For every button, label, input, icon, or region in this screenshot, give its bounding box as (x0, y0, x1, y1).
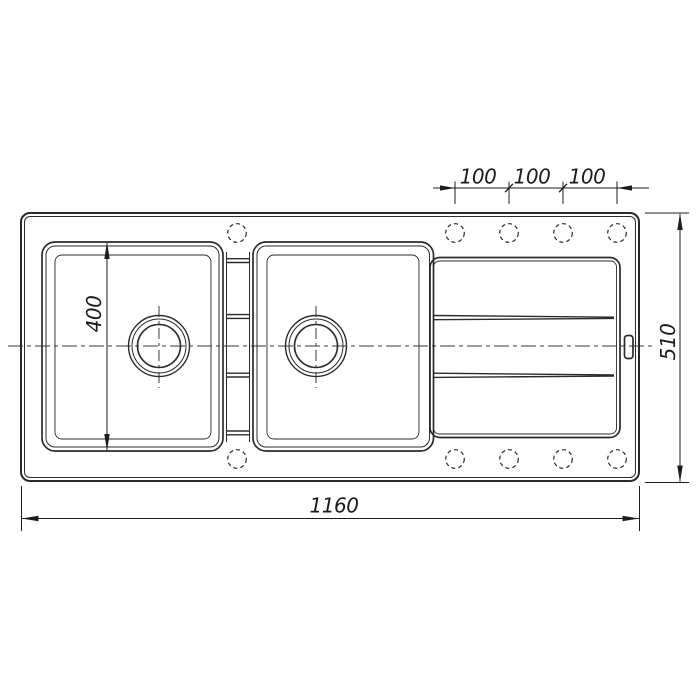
dim-label-spacing-2: 100 (514, 165, 551, 189)
mounting-hole (228, 224, 247, 243)
left-bowl-bottom (55, 255, 211, 439)
mounting-hole (446, 224, 465, 243)
drainboard-inner (434, 261, 617, 434)
mounting-hole (554, 224, 573, 243)
arrowhead-left (22, 516, 39, 521)
arrowhead-down (677, 466, 682, 483)
drainboard-groove-lower (434, 373, 614, 377)
arrowhead-up (104, 242, 109, 259)
sink-outer-edge (21, 213, 639, 481)
mounting-hole (500, 224, 519, 243)
sink-technical-drawing: 100 100 100 400 510 1160 (0, 0, 700, 700)
arrowhead-left (617, 185, 632, 190)
bowl-divider (227, 252, 250, 442)
dim-label-spacing-1: 100 (460, 165, 497, 189)
arrowhead-right (440, 185, 455, 190)
dim-label-length: 1160 (310, 494, 359, 518)
divider-rung-4 (227, 431, 250, 435)
mounting-hole (500, 450, 519, 469)
mounting-hole (608, 450, 627, 469)
dimension-overall-length: 1160 (22, 486, 640, 531)
arrowhead-down (104, 434, 109, 451)
dim-label-spacing-3: 100 (569, 165, 606, 189)
technical-drawing-page: 100 100 100 400 510 1160 (0, 0, 700, 700)
dimension-overall-depth: 510 (645, 213, 689, 483)
sink-body-outline (21, 213, 639, 481)
overflow-slot (625, 336, 634, 359)
mounting-hole (446, 450, 465, 469)
drainboard (430, 258, 620, 438)
divider-rung-3 (227, 373, 250, 377)
divider-rung-1 (227, 259, 250, 263)
dim-label-depth: 510 (656, 324, 680, 361)
arrowhead-right (623, 516, 640, 521)
dimension-hole-spacing: 100 100 100 (433, 165, 649, 205)
mounting-hole (228, 450, 247, 469)
mounting-hole (608, 224, 627, 243)
arrowhead-up (677, 213, 682, 230)
dim-label-bowl: 400 (82, 296, 106, 333)
divider-rung-2 (227, 315, 250, 319)
drainboard-outer (430, 258, 620, 438)
sink-inner-edge (25, 217, 636, 478)
mounting-hole (554, 450, 573, 469)
drainboard-groove-upper (434, 316, 614, 320)
